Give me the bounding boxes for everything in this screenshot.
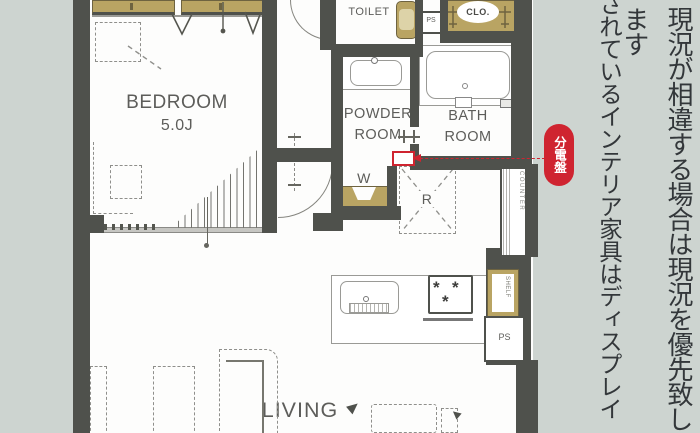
counter-edge-line [506,169,507,255]
curtain-icon [160,0,270,40]
vanity-faucet [371,57,378,64]
bath-room-label-line2: ROOM [420,127,516,148]
kitchen-faucet [363,296,369,302]
bath-door-mark [413,130,415,143]
wall [516,360,538,433]
bath-door-mark [403,130,405,143]
counter-edge-line [509,169,510,255]
wall [440,31,517,43]
wall [313,213,343,231]
living-furniture-dashed [153,366,195,433]
partition-handle [207,197,208,245]
hanger-icon [497,4,513,30]
closet-handle [130,3,133,10]
sofa-inner-line [226,360,264,362]
bathtub-drain [462,83,468,89]
wall [410,55,419,127]
stove-burner-icon: * [433,283,440,293]
wall [511,40,532,170]
bath-room-label-line1: BATH [420,106,516,127]
hall-door-tick [288,184,301,186]
wall [387,166,397,214]
disclaimer-column-left: されているインテリア家具はディスプレイ [590,0,626,433]
ps-lower-label: PS [484,332,525,342]
distribution-board-badge: 分電盤 [544,124,574,186]
living-furniture-dashed [90,366,107,433]
hall-door-tick [288,136,301,138]
wall [415,0,423,47]
bedroom-size-label: 5.0J [93,117,261,135]
wall [73,215,104,233]
stove-grill-line [423,318,473,321]
distribution-board-box [392,151,415,166]
counter-label: COUNTER [511,171,524,253]
kitchen-sink-rack [349,303,389,313]
bathtub [426,51,510,99]
bath-door-mark [398,136,420,138]
washer-label: W [352,170,376,186]
wall [262,0,277,233]
fridge-label: R [415,191,439,207]
table-dashed [371,404,437,433]
vanity-basin [350,60,402,86]
bath-room-label: BATH ROOM [420,106,516,148]
wall [331,50,343,217]
louver-band [104,224,159,230]
toilet-label: TOILET [338,6,400,18]
stove-burner-icon: * [452,283,459,293]
toilet-fixture-seat [399,9,414,30]
wall [271,148,333,162]
partition-handle-knob [204,243,209,248]
distribution-board-line [415,158,545,159]
wall [514,0,532,43]
sofa-inner-line [262,360,264,433]
closet-label: CLO. [457,7,499,17]
shelf-label: SHELF [496,276,510,310]
counter-edge-line [503,169,504,255]
powder-room-label-line1: POWDER [340,104,416,125]
wall [320,0,336,50]
disclaimer-column-right: 現況が相違する場合は現況を優先致します [656,6,700,433]
floorplan-page: BEDROOM 5.0J TOILET PS CLO. POWDER ROOM … [0,0,700,433]
hall-door-leaf [294,133,295,191]
stove-burner-icon: * [442,297,449,307]
bedroom-furniture-diagonal [125,42,165,72]
bedroom-furniture-dashed [110,165,142,199]
bedroom-label: BEDROOM [93,92,261,114]
powder-room-label: POWDER ROOM [340,104,416,146]
